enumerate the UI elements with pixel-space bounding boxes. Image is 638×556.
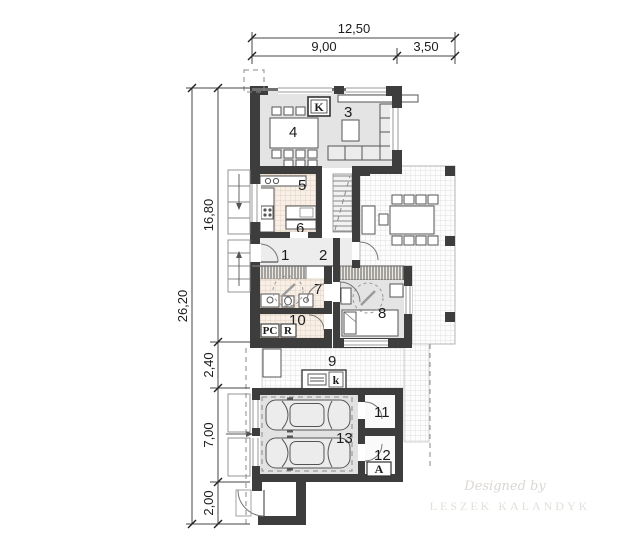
lounger xyxy=(362,206,375,234)
garage-block: 11 13 12 A xyxy=(252,388,403,482)
kitchen-block: 5 6 xyxy=(260,174,316,237)
utility-10: 10 PC R xyxy=(260,312,324,338)
dim-total-width: 12,50 xyxy=(338,21,371,36)
car-1 xyxy=(266,398,350,433)
coffee-table xyxy=(342,120,359,141)
room-label-2: 2 xyxy=(319,247,327,264)
wardrobe-hall xyxy=(256,266,306,279)
room-label-1: 1 xyxy=(281,247,289,264)
fireplace-marker: K xyxy=(308,97,330,116)
room-label-4: 4 xyxy=(289,124,297,141)
dim-seg-240: 2,40 xyxy=(201,352,216,377)
designer-watermark: Designed by LESZEK KALANDYK xyxy=(430,479,591,513)
dim-house-width: 9,00 xyxy=(311,39,336,54)
side-path xyxy=(404,344,429,442)
floor-plan-drawing: K 3 4 5 6 1 2 xyxy=(0,0,638,556)
room-label-12-neighbor: 13 xyxy=(336,430,353,447)
room-label-3: 3 xyxy=(344,104,352,121)
bathroom-7: 7 xyxy=(260,276,324,308)
dimension-top: 12,50 9,00 3,50 xyxy=(248,21,459,64)
terrace-column xyxy=(445,312,455,322)
room-label-11: 11 xyxy=(374,404,390,421)
wardrobe-bedroom xyxy=(340,266,404,280)
switchboard-marker: R xyxy=(281,324,296,337)
dim-total-depth: 26,20 xyxy=(175,290,190,323)
watermark-designed-by: Designed by xyxy=(463,479,546,494)
room-label-9: 9 xyxy=(328,353,336,370)
watermark-designer-name: LESZEK KALANDYK xyxy=(430,499,591,513)
exterior-steps xyxy=(226,170,253,476)
staircase xyxy=(333,174,352,232)
dim-seg-200: 2,00 xyxy=(201,490,216,515)
attic-letter: A xyxy=(375,462,384,476)
dim-terrace-width: 3,50 xyxy=(413,39,438,54)
bedroom-8: 8 xyxy=(340,280,404,338)
media-shelf xyxy=(338,95,418,102)
floor-plan-page: K 3 4 5 6 1 2 xyxy=(0,0,638,556)
bench xyxy=(263,349,281,377)
fireplace-letter: K xyxy=(314,100,324,114)
boiler-marker: PC xyxy=(261,324,279,337)
dresser xyxy=(390,284,403,297)
terrace-column xyxy=(445,166,455,176)
room-label-8: 8 xyxy=(378,305,386,322)
attic-marker: A xyxy=(367,462,391,476)
room-label-5: 5 xyxy=(298,177,306,194)
terrace-column xyxy=(445,236,455,246)
switchboard-letter: R xyxy=(284,325,293,337)
dim-seg-700: 7,00 xyxy=(201,422,216,447)
dim-seg-1680: 16,80 xyxy=(201,199,216,232)
grill-letter: k xyxy=(333,373,340,387)
boiler-letters: PC xyxy=(263,325,278,337)
room-label-7: 7 xyxy=(314,281,322,298)
grill-marker: k xyxy=(302,370,346,389)
